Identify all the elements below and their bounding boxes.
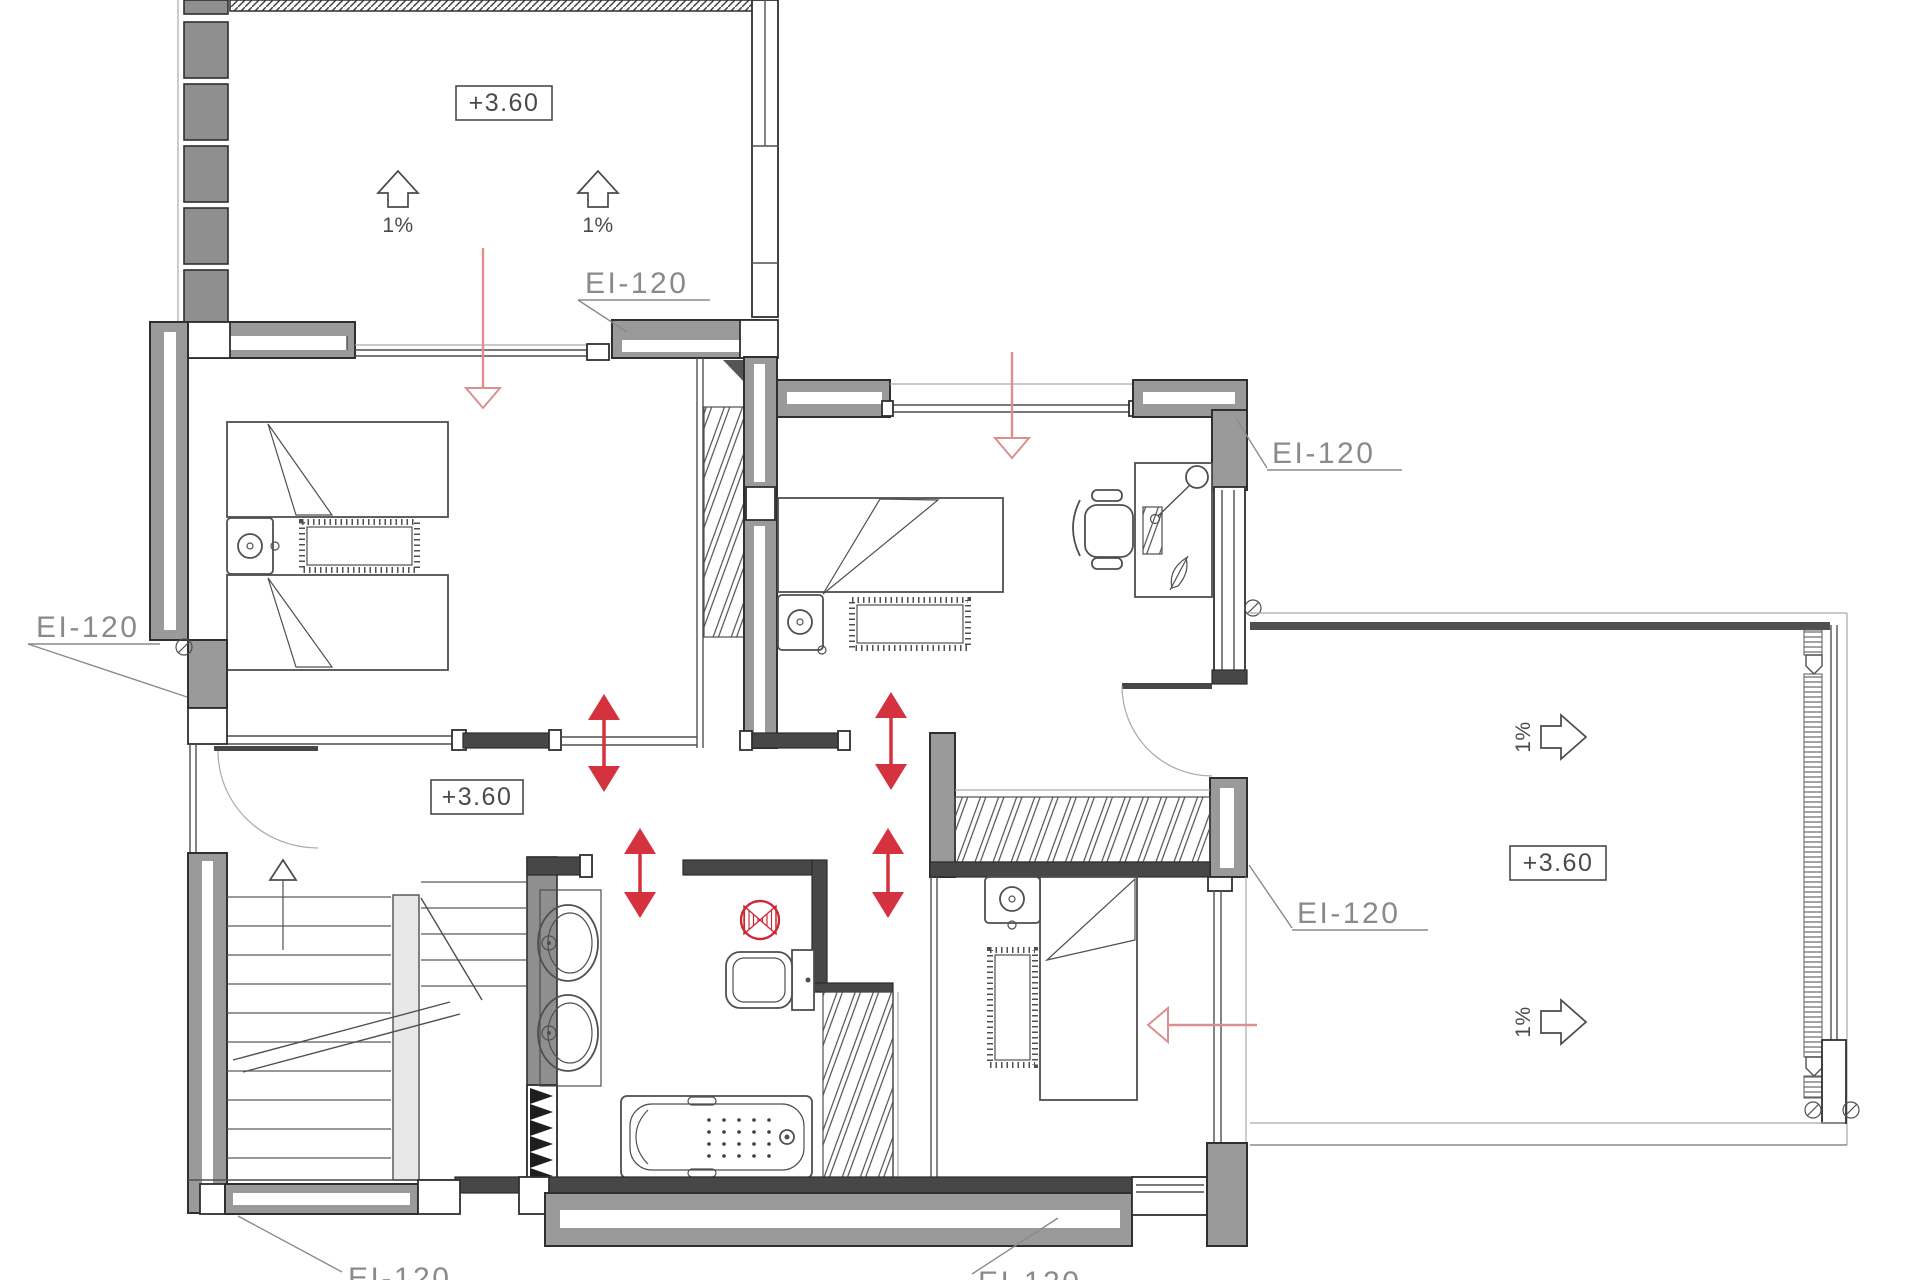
- drain-arrow-icon: [1806, 1057, 1822, 1076]
- fire-rating-text: EI-120: [1297, 897, 1400, 930]
- shaft-hatch-icon: [527, 1085, 557, 1180]
- door-leaf: [214, 746, 318, 751]
- leader-line: [28, 644, 187, 697]
- slope-arrow-right-1: 1%: [1512, 715, 1586, 759]
- fire-rating-text: EI-120: [585, 267, 688, 300]
- top-wall: [230, 0, 755, 11]
- elevation-label-hall: +3.60: [431, 780, 523, 814]
- corner-post: [1822, 1040, 1846, 1123]
- leader-line: [578, 300, 627, 332]
- bathroom-closet: [823, 992, 898, 1180]
- sink-icon: [538, 995, 598, 1071]
- bottom-wall-left: [188, 1180, 460, 1214]
- elevation-label-top: +3.60: [456, 86, 552, 120]
- ei120-wall-segment: [612, 320, 760, 358]
- fire-label-right-upper: EI-120: [1237, 420, 1402, 470]
- door-bedroom1: [214, 746, 318, 848]
- slope-arrow-icon: [1541, 1000, 1586, 1044]
- fire-label-bottom-left: EI-120: [238, 1216, 451, 1280]
- slope-text: 1%: [582, 214, 613, 237]
- slope-arrow-icon: [578, 171, 618, 207]
- bathtub-icon: [621, 1096, 812, 1178]
- stair-flight-right: [421, 877, 527, 1009]
- wardrobe-hatch-icon: [823, 992, 893, 1180]
- bed-double-left: [227, 422, 448, 670]
- slope-text: 1%: [1512, 1006, 1535, 1037]
- leader-line: [1249, 865, 1292, 928]
- bed-icon: [227, 575, 448, 670]
- extractor-fan-icon: [741, 901, 779, 939]
- slope-arrow-icon: [378, 171, 418, 207]
- wardrobe-hatch-icon: [955, 797, 1210, 862]
- elevation-text: +3.60: [469, 89, 540, 117]
- top-room-bottom-wall: [182, 320, 778, 385]
- hall-closet: [930, 733, 1210, 877]
- wardrobe-hatch-icon: [704, 407, 744, 637]
- toilet-icon: [726, 950, 814, 1010]
- leader-line: [238, 1216, 342, 1272]
- staircase: [176, 639, 527, 1213]
- rug-icon: [990, 950, 1035, 1065]
- wall-niche: [746, 487, 775, 520]
- bedroom-2: EI-120: [740, 352, 1402, 877]
- terrace-rail: [1250, 622, 1830, 630]
- bed-icon: [778, 498, 1003, 592]
- flow-arrow-icon: [466, 388, 500, 408]
- slope-text: 1%: [382, 214, 413, 237]
- fire-rating-text: EI-120: [36, 611, 139, 644]
- bed-single-bottom: [985, 877, 1137, 1100]
- fire-label-right-lower: EI-120: [1249, 865, 1428, 930]
- slope-arrow-icon: [1541, 715, 1586, 759]
- workstation: [1073, 463, 1212, 597]
- drain-arrow-icon: [1806, 655, 1822, 674]
- stair-up-arrow-icon: [270, 860, 296, 880]
- door-swing-icon: [218, 751, 318, 848]
- elevation-text: +3.60: [442, 783, 513, 811]
- slope-arrow-up-2: 1%: [578, 171, 618, 237]
- nightstand: [227, 518, 273, 574]
- fire-rating-text: EI-120: [978, 1266, 1081, 1280]
- nightstand: [985, 877, 1040, 923]
- corner-post: [182, 322, 230, 358]
- flow-arrow-icon: [995, 438, 1029, 458]
- bed-icon: [1040, 877, 1137, 1100]
- stair-divider-wall: [393, 895, 419, 1180]
- airflow-double-arrow-2: [875, 692, 907, 790]
- block-wall-column: [178, 0, 228, 325]
- nightstand: [778, 595, 823, 650]
- rug-icon: [852, 600, 968, 648]
- elevation-text: +3.60: [1523, 849, 1594, 877]
- airflow-double-arrow-1: [588, 694, 620, 792]
- room-top-terrace: +3.60 1% 1% EI-120: [178, 0, 778, 408]
- elevation-label-terrace: +3.60: [1510, 846, 1606, 880]
- keyboard-icon: [1143, 507, 1162, 554]
- door-leaf: [1122, 683, 1212, 689]
- window-block: [1214, 487, 1245, 672]
- sink-icon: [538, 905, 598, 981]
- terrace-door: [1122, 683, 1212, 776]
- rug-icon: [302, 522, 417, 570]
- direction-arrow-left: [1148, 1008, 1257, 1042]
- door-swing-icon: [1122, 686, 1212, 776]
- airflow-double-arrow-4: [872, 828, 904, 918]
- floor-plan-canvas: +3.60 1% 1% EI-120: [0, 0, 1920, 1280]
- bed-icon: [227, 422, 448, 517]
- airflow-double-arrow-3: [624, 828, 656, 918]
- flow-arrow-icon: [1148, 1008, 1168, 1042]
- slope-text: 1%: [1512, 721, 1535, 752]
- slope-arrow-right-2: 1%: [1512, 1000, 1586, 1044]
- thin-partition-wall: [752, 0, 778, 317]
- bed-single-middle: [778, 498, 1003, 654]
- corner-post: [740, 320, 778, 358]
- stair-flight-left: [227, 888, 391, 1180]
- terrace-balustrade: [1804, 613, 1859, 1145]
- bottom-wall-dark-bar: [455, 1177, 1210, 1193]
- bathroom: [527, 855, 898, 1180]
- bedroom-1: [150, 322, 777, 848]
- fire-rating-text: EI-120: [1272, 437, 1375, 470]
- slope-arrow-up-1: 1%: [378, 171, 418, 237]
- office-chair-icon: [1073, 490, 1133, 569]
- fire-rating-text: EI-120: [348, 1262, 451, 1280]
- airflow-arrow-down-1: [466, 248, 500, 408]
- terrace: +3.60 1% 1%: [1245, 600, 1859, 1145]
